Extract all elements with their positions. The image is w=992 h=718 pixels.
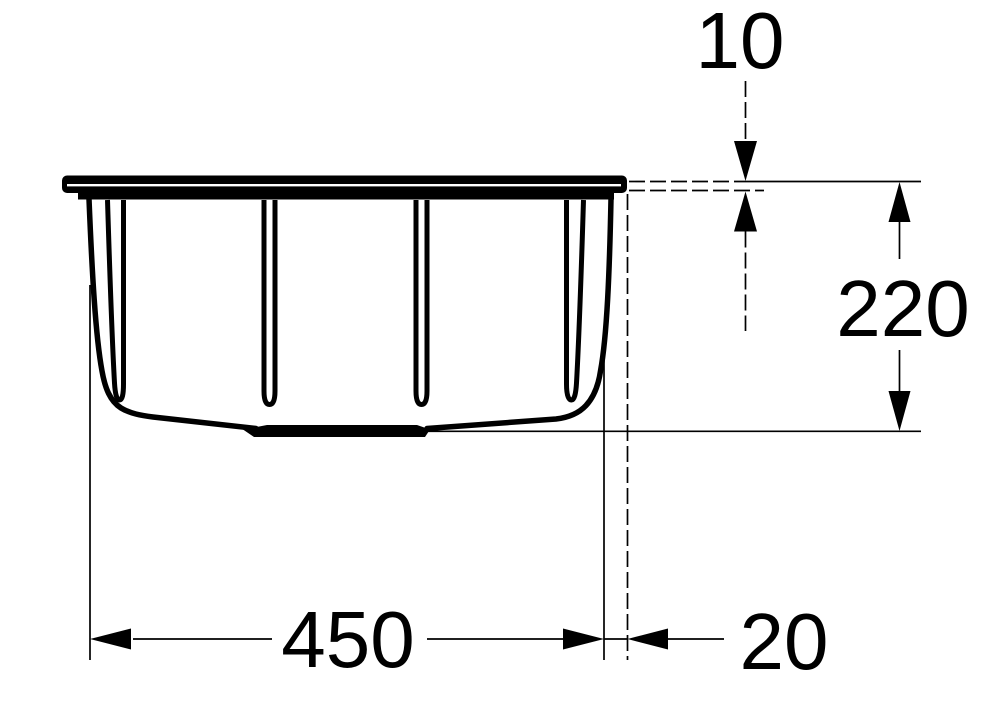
dim-width: 450 bbox=[90, 285, 604, 684]
rim-flange bbox=[62, 176, 627, 200]
dim10-arrow-up bbox=[734, 192, 757, 232]
dim-overhang: 20 bbox=[604, 194, 828, 686]
rim-top-surface-line bbox=[67, 184, 621, 186]
dim450-arrow-right bbox=[563, 629, 604, 650]
dim10-arrow-down bbox=[734, 141, 757, 181]
dim220-arrow-down bbox=[889, 391, 911, 431]
dim220-arrow-up bbox=[889, 182, 911, 222]
dim220-label: 220 bbox=[836, 264, 969, 353]
dim10-label: 10 bbox=[696, 0, 785, 85]
wire-mid-right bbox=[416, 200, 427, 405]
drawing-canvas: 10 220 450 20 bbox=[0, 0, 992, 718]
drain-boss bbox=[243, 425, 430, 437]
dim450-label: 450 bbox=[281, 595, 414, 684]
dim20-arrow-left bbox=[628, 629, 669, 650]
bowl-outline bbox=[89, 199, 611, 437]
wire-left bbox=[108, 200, 124, 400]
wire-mid-left bbox=[264, 200, 275, 405]
dim20-label: 20 bbox=[740, 597, 829, 686]
wire-right bbox=[567, 200, 584, 400]
technical-drawing: 10 220 450 20 bbox=[0, 0, 992, 718]
basket-wires bbox=[108, 200, 584, 405]
dim450-arrow-left bbox=[90, 629, 131, 650]
dim-rim-thickness: 10 bbox=[629, 0, 784, 331]
rim-underside bbox=[78, 185, 614, 200]
sink-section bbox=[62, 176, 627, 438]
dim-depth: 220 bbox=[424, 182, 970, 432]
